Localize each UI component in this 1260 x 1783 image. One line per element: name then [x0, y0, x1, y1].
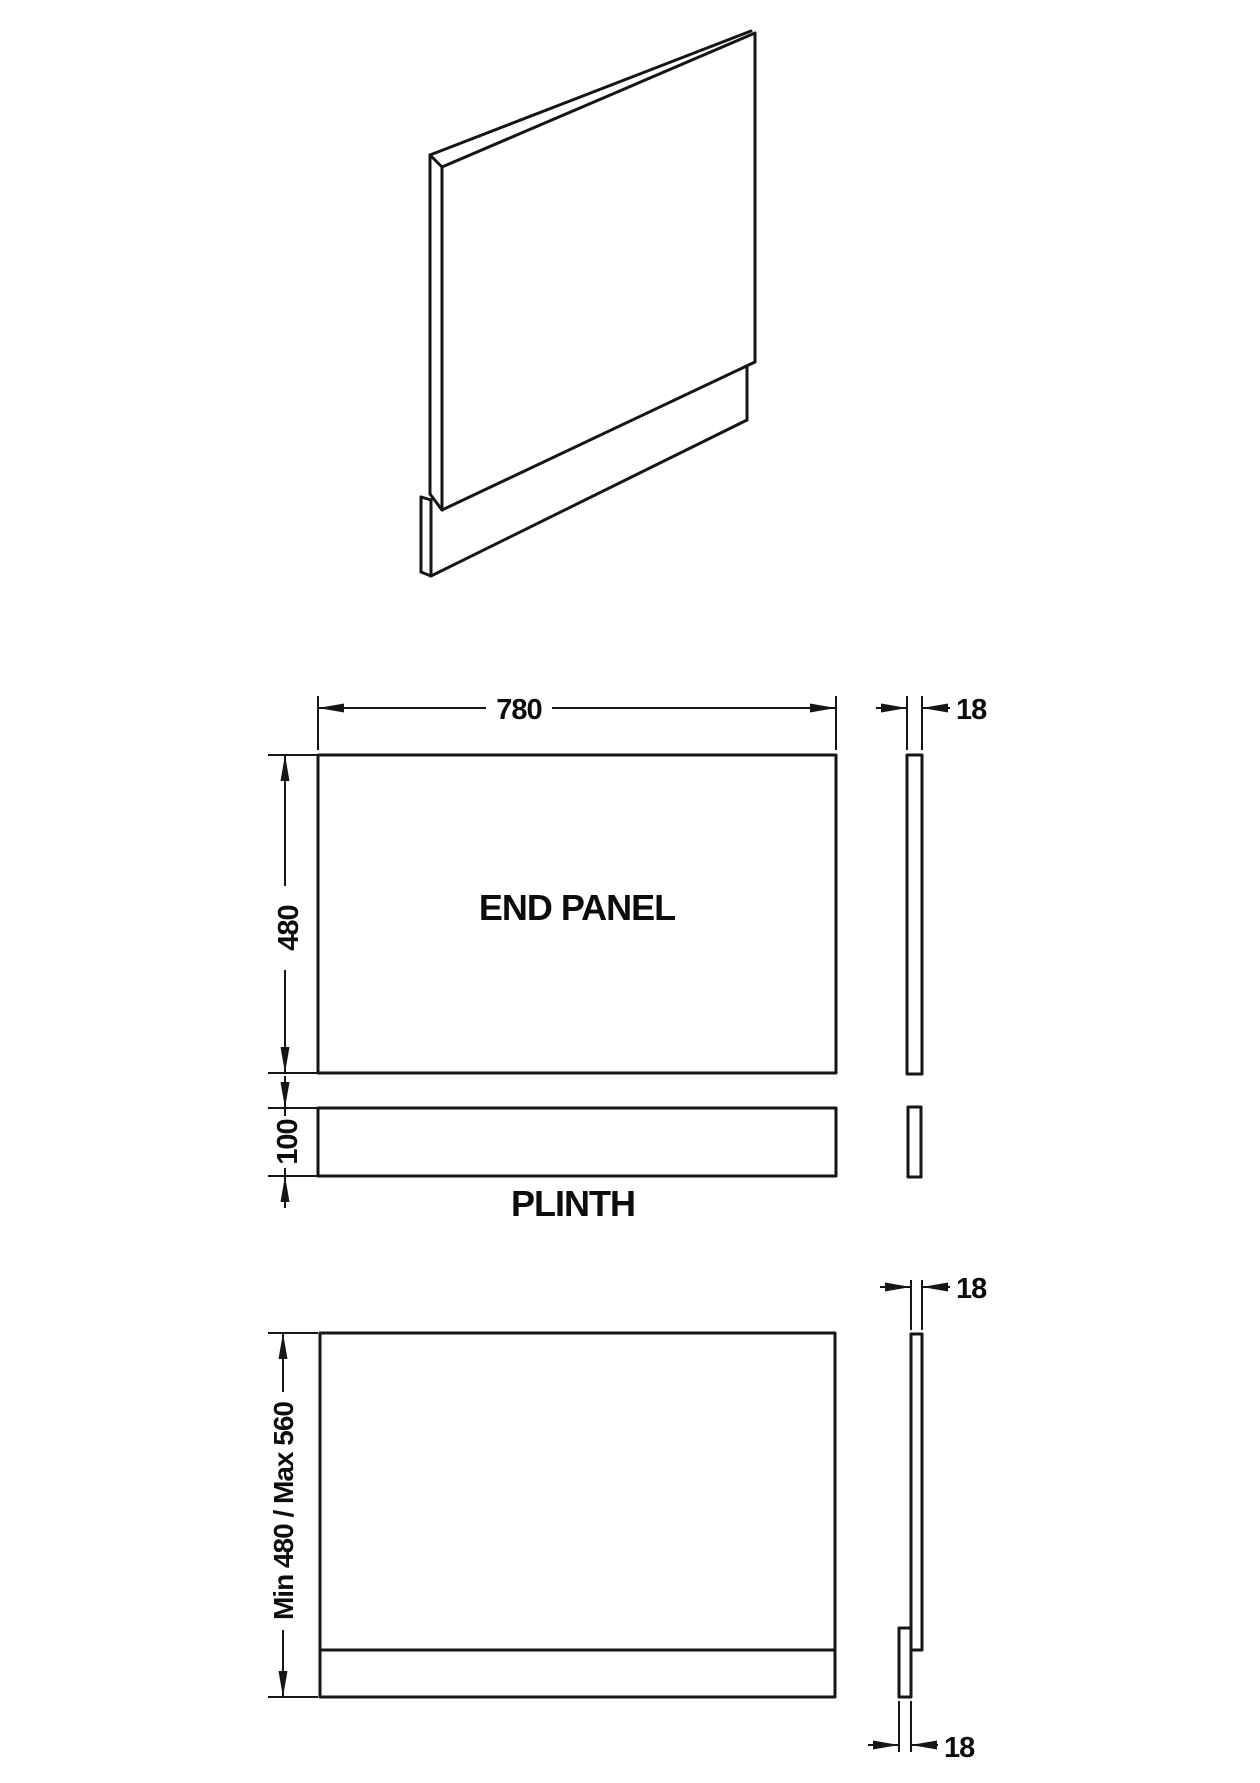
isometric-view: [421, 31, 755, 576]
assembled-side-panel: [911, 1334, 922, 1650]
dimension-assembled-panel-thickness: 18: [880, 1273, 987, 1330]
panel-width-value: 780: [496, 694, 541, 726]
dimension-plinth-height: 100: [268, 1076, 318, 1208]
dimension-panel-thickness: 18: [876, 694, 987, 750]
dimension-assembled-plinth-thickness: 18: [868, 1701, 975, 1764]
plinth-height-value: 100: [272, 1119, 304, 1164]
assembled-view: Min 480 / Max 560 18 18: [268, 1273, 987, 1764]
side-view-end-panel: [907, 755, 922, 1074]
height-range-value: Min 480 / Max 560: [268, 1402, 299, 1620]
front-view-plinth: [318, 1108, 836, 1176]
assembled-side-plinth: [899, 1628, 911, 1697]
technical-drawing: 780 480 100: [0, 0, 1260, 1783]
drawing-sheet: 780 480 100: [0, 0, 1260, 1783]
panel-height-value: 480: [273, 905, 305, 950]
assembled-panel-thickness-value: 18: [956, 1273, 987, 1305]
dimension-panel-height: 480: [268, 755, 318, 1073]
dimension-panel-width: 780: [318, 694, 836, 750]
plinth-label: PLINTH: [511, 1183, 635, 1224]
assembled-plinth-thickness-value: 18: [944, 1732, 975, 1764]
side-view-plinth: [908, 1107, 921, 1177]
dimension-adjustable-height: Min 480 / Max 560: [268, 1333, 318, 1697]
exploded-view: 780 480 100: [268, 694, 987, 1224]
end-panel-label: END PANEL: [479, 887, 675, 928]
assembled-front-view: [320, 1333, 835, 1697]
panel-thickness-value: 18: [956, 694, 987, 726]
